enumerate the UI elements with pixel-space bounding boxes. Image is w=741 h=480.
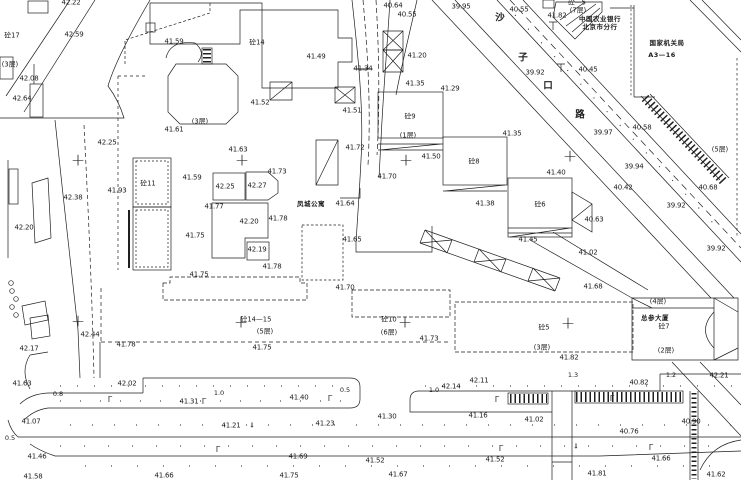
elevation-label: 41.51 bbox=[342, 108, 361, 115]
building-label: 砼17 bbox=[4, 33, 19, 40]
elevation-label: 41.68 bbox=[583, 284, 602, 291]
elevation-label: 41.31 bbox=[179, 399, 198, 406]
elevation-label: 41.52 bbox=[250, 100, 269, 107]
elevation-label: 40.64 bbox=[383, 3, 402, 10]
road-width-label: 0.5 bbox=[5, 435, 15, 442]
grid-cross-mark: + bbox=[398, 315, 412, 332]
elevation-label: 41.46 bbox=[27, 454, 46, 461]
elevation-label: 40.68 bbox=[698, 185, 717, 192]
elevation-label: 42.21 bbox=[709, 373, 728, 380]
elevation-label: 41.23 bbox=[315, 421, 334, 428]
elevation-label: 42.64 bbox=[12, 96, 31, 103]
elevation-label: 40.45 bbox=[578, 67, 597, 74]
elevation-label: 41.07 bbox=[21, 419, 40, 426]
elevation-label: 41.45 bbox=[518, 237, 537, 244]
street-lamp-icon: Γ bbox=[202, 398, 206, 406]
road-width-label: 0.5 bbox=[340, 387, 350, 394]
street-lamp-icon: Γ bbox=[216, 446, 220, 454]
elevation-label: 42.22 bbox=[61, 0, 80, 7]
elevation-label: 41.30 bbox=[377, 414, 396, 421]
elevation-label: 40.90 bbox=[681, 419, 700, 426]
elevation-label: 41.63 bbox=[12, 381, 31, 388]
elevation-label: 41.34 bbox=[353, 66, 372, 73]
elevation-label: 41.65 bbox=[342, 237, 361, 244]
elevation-label: 41.52 bbox=[365, 458, 384, 465]
elevation-label: 40.58 bbox=[632, 125, 651, 132]
grid-cross-mark: + bbox=[234, 315, 248, 332]
annotation-label: 北京市分行 bbox=[583, 24, 618, 31]
annotation-label: 总参大厦 bbox=[641, 315, 669, 322]
annotation-label: 凤城公寓 bbox=[297, 201, 325, 208]
road-width-label: 1.2 bbox=[666, 372, 676, 379]
elevation-label: 42.27 bbox=[247, 183, 266, 190]
elevation-label: 41.70 bbox=[377, 174, 396, 181]
elevation-label: 41.77 bbox=[204, 204, 223, 211]
road-width-label: 1.0 bbox=[429, 387, 439, 394]
floor-count-label: (4层) bbox=[650, 299, 666, 306]
elevation-label: 41.75 bbox=[189, 272, 208, 279]
elevation-label: 41.78 bbox=[262, 264, 281, 271]
elevation-label: 39.92 bbox=[525, 70, 544, 77]
elevation-label: 41.49 bbox=[306, 54, 325, 61]
elevation-label: 41.81 bbox=[587, 471, 606, 478]
elevation-label: 41.61 bbox=[164, 127, 183, 134]
grid-cross-mark: + bbox=[235, 153, 249, 170]
annotation-label: 国家机关局 bbox=[650, 40, 685, 47]
elevation-label: 41.58 bbox=[23, 474, 42, 480]
annotation-label: A3—16 bbox=[648, 52, 676, 59]
building-label: 砼14 bbox=[249, 40, 264, 47]
road-width-label: 1.3 bbox=[568, 372, 578, 379]
grid-cross-mark: + bbox=[399, 153, 413, 170]
elevation-label: 41.40 bbox=[546, 170, 565, 177]
elevation-label: 42.38 bbox=[63, 195, 82, 202]
elevation-label: 42.44 bbox=[80, 332, 99, 339]
building-label: 砼6 bbox=[534, 202, 545, 209]
flow-arrow-icon: ⇓ bbox=[573, 444, 579, 451]
building-label: 砼11 bbox=[140, 181, 155, 188]
grid-cross-mark: + bbox=[563, 149, 577, 166]
elevation-label: 40.82 bbox=[629, 380, 648, 387]
floor-count-label: (7层) bbox=[570, 8, 586, 15]
floor-count-label: (1层) bbox=[400, 133, 416, 140]
elevation-label: 41.67 bbox=[388, 472, 407, 479]
elevation-label: 42.25 bbox=[97, 140, 116, 147]
elevation-label: 39.97 bbox=[593, 130, 612, 137]
street-name-char: 子 bbox=[518, 53, 528, 63]
elevation-label: 41.70 bbox=[335, 285, 354, 292]
elevation-label: 41.21 bbox=[221, 423, 240, 430]
floor-count-label: (5层) bbox=[257, 329, 273, 336]
building-label: 砼9 bbox=[404, 114, 415, 121]
grid-cross-mark: + bbox=[561, 316, 575, 333]
building-label: 砼7 bbox=[658, 324, 669, 331]
elevation-label: 42.17 bbox=[19, 346, 38, 353]
elevation-label: 40.63 bbox=[584, 217, 603, 224]
elevation-label: 41.78 bbox=[116, 342, 135, 349]
elevation-label: 40.55 bbox=[397, 12, 416, 19]
elevation-label: 42.14 bbox=[441, 384, 460, 391]
elevation-label: 41.38 bbox=[475, 201, 494, 208]
road-width-label: 1.0 bbox=[214, 390, 224, 397]
elevation-label: 40.55 bbox=[509, 7, 528, 14]
street-lamp-icon: Γ bbox=[495, 396, 499, 404]
elevation-label: 41.59 bbox=[164, 39, 183, 46]
floor-count-label: (2层) bbox=[658, 348, 674, 355]
elevation-label: 41.35 bbox=[405, 81, 424, 88]
elevation-label: 42.25 bbox=[215, 184, 234, 191]
elevation-label: 41.72 bbox=[345, 145, 364, 152]
floor-count-label: (6层) bbox=[381, 330, 397, 337]
annotation-label: 中国农业银行 bbox=[579, 16, 621, 23]
flow-arrow-icon: ⇓ bbox=[249, 423, 255, 430]
elevation-label: 41.02 bbox=[524, 417, 543, 424]
elevation-label: 42.59 bbox=[64, 32, 83, 39]
elevation-label: 40.42 bbox=[613, 185, 632, 192]
elevation-label: 39.92 bbox=[706, 246, 725, 253]
elevation-label: 41.66 bbox=[154, 473, 173, 480]
floor-count-label: (5层) bbox=[712, 147, 728, 154]
street-name-char: 沙 bbox=[495, 13, 505, 23]
elevation-label: 41.50 bbox=[421, 154, 440, 161]
map-labels: 42.2242.5941.5942.0842.6441.6142.2541.63… bbox=[0, 0, 741, 480]
elevation-label: 41.20 bbox=[407, 53, 426, 60]
floor-count-label: (3层) bbox=[2, 62, 18, 69]
street-lamp-icon: Γ bbox=[610, 395, 614, 403]
elevation-label: 41.82 bbox=[547, 13, 566, 20]
elevation-label: 41.66 bbox=[651, 456, 670, 463]
building-label: 砼5 bbox=[538, 325, 549, 332]
elevation-label: 41.73 bbox=[419, 336, 438, 343]
elevation-label: 41.69 bbox=[288, 454, 307, 461]
floor-count-label: (3层) bbox=[534, 345, 550, 352]
elevation-label: 42.20 bbox=[239, 219, 258, 226]
elevation-label: 41.02 bbox=[578, 250, 597, 257]
elevation-label: 41.73 bbox=[267, 169, 286, 176]
elevation-label: 41.82 bbox=[559, 355, 578, 362]
elevation-label: 42.20 bbox=[14, 225, 33, 232]
elevation-label: 41.62 bbox=[706, 472, 725, 479]
elevation-label: 41.16 bbox=[468, 413, 487, 420]
elevation-label: 41.93 bbox=[107, 188, 126, 195]
elevation-label: 41.78 bbox=[268, 216, 287, 223]
elevation-label: 39.94 bbox=[624, 164, 643, 171]
street-lamp-icon: Γ bbox=[649, 444, 653, 452]
elevation-label: 41.75 bbox=[185, 233, 204, 240]
elevation-label: 41.52 bbox=[485, 457, 504, 464]
elevation-label: 41.64 bbox=[335, 201, 354, 208]
elevation-label: 42.02 bbox=[117, 381, 136, 388]
street-lamp-icon: Γ bbox=[108, 396, 112, 404]
building-label: 砼10 bbox=[381, 317, 396, 324]
grid-cross-mark: + bbox=[71, 314, 85, 331]
street-lamp-icon: Γ bbox=[328, 395, 332, 403]
street-name-char: 路 bbox=[575, 110, 585, 120]
elevation-label: 41.29 bbox=[440, 86, 459, 93]
street-lamp-icon: Γ bbox=[499, 445, 503, 453]
elevation-label: 41.40 bbox=[289, 395, 308, 402]
building-label: 砼8 bbox=[468, 159, 479, 166]
elevation-label: 41.75 bbox=[252, 345, 271, 352]
elevation-label: 41.59 bbox=[182, 175, 201, 182]
elevation-label: 41.35 bbox=[502, 131, 521, 138]
elevation-label: 39.92 bbox=[666, 203, 685, 210]
elevation-label: 42.19 bbox=[247, 247, 266, 254]
elevation-label: 42.08 bbox=[19, 76, 38, 83]
road-width-label: 0.8 bbox=[53, 391, 63, 398]
floor-count-label: (3层) bbox=[192, 119, 208, 126]
street-name-char: 口 bbox=[543, 81, 553, 91]
elevation-label: 42.11 bbox=[469, 378, 488, 385]
grid-cross-mark: + bbox=[71, 153, 85, 170]
elevation-label: 41.75 bbox=[279, 473, 298, 480]
building-label: 砼—5 bbox=[568, 0, 586, 6]
elevation-label: 39.95 bbox=[451, 4, 470, 11]
elevation-label: 40.76 bbox=[619, 429, 638, 436]
map-canvas: 42.2242.5941.5942.0842.6441.6142.2541.63… bbox=[0, 0, 741, 480]
